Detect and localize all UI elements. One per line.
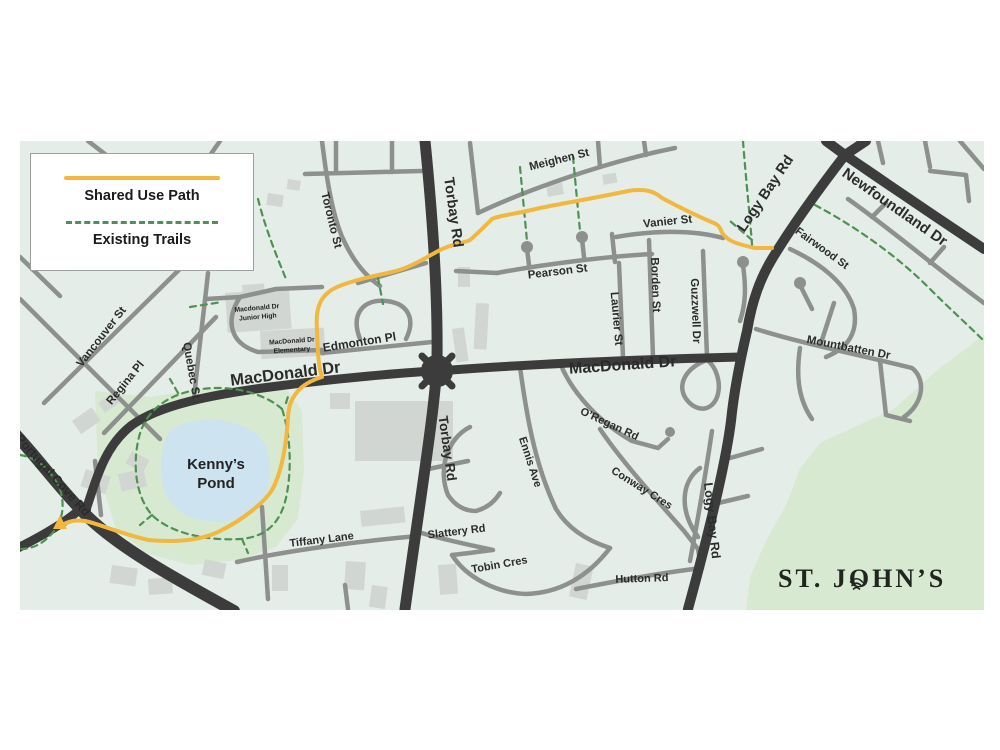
city-wordmark: ST. JOHN’S (778, 564, 946, 593)
legend: Shared Use Path Existing Trails (30, 153, 254, 271)
street-label-conway: Conway Cres (609, 465, 674, 512)
shared-use-path-label: Shared Use Path (84, 188, 199, 204)
shared-use-path-swatch (64, 176, 220, 180)
existing-trails-swatch (66, 221, 218, 224)
street-label-borden: Borden St (648, 257, 662, 313)
street-label-newfoundland: Newfoundland Dr (839, 165, 951, 250)
street-label-tobin: Tobin Cres (471, 554, 529, 576)
legend-item-existing-trails: Existing Trails (66, 221, 218, 248)
street-label-oregan: O’Regan Rd (578, 406, 640, 443)
street-label-slattery: Slattery Rd (427, 523, 486, 542)
street-label-macdonald-east: MacDonald Dr (568, 353, 677, 377)
city-wordmark-text: ST. JOHN’S (778, 564, 946, 593)
street-label-logy-bay-north: Logy Bay Rd (734, 153, 797, 235)
street-label-toronto: Toronto St (318, 191, 344, 250)
legend-item-shared-use-path: Shared Use Path (64, 176, 220, 204)
kennys-pond-label-line1: Kenny’s (187, 456, 245, 473)
kennys-pond-label-line2: Pond (197, 475, 235, 492)
street-label-meighen: Meighen St (528, 147, 591, 174)
existing-trails-label: Existing Trails (93, 232, 191, 248)
street-label-torbay-north: Torbay Rd (440, 176, 466, 248)
street-label-guzzwell: Guzzwell Dr (688, 278, 702, 344)
street-label-vanier: Vanier St (643, 213, 693, 230)
portugal-cove-branch-road (20, 511, 78, 549)
street-label-portugal-cove: Portugal Cove Rd (20, 432, 93, 519)
city-trail-map: Meighen St Torbay Rd Torbay Rd Toronto S… (20, 141, 984, 610)
newfoundland-dr-road (826, 141, 984, 249)
street-label-vancouver: Vancouver St (74, 305, 128, 370)
street-label-hutton: Hutton Rd (615, 572, 669, 586)
roundabout (422, 356, 452, 386)
